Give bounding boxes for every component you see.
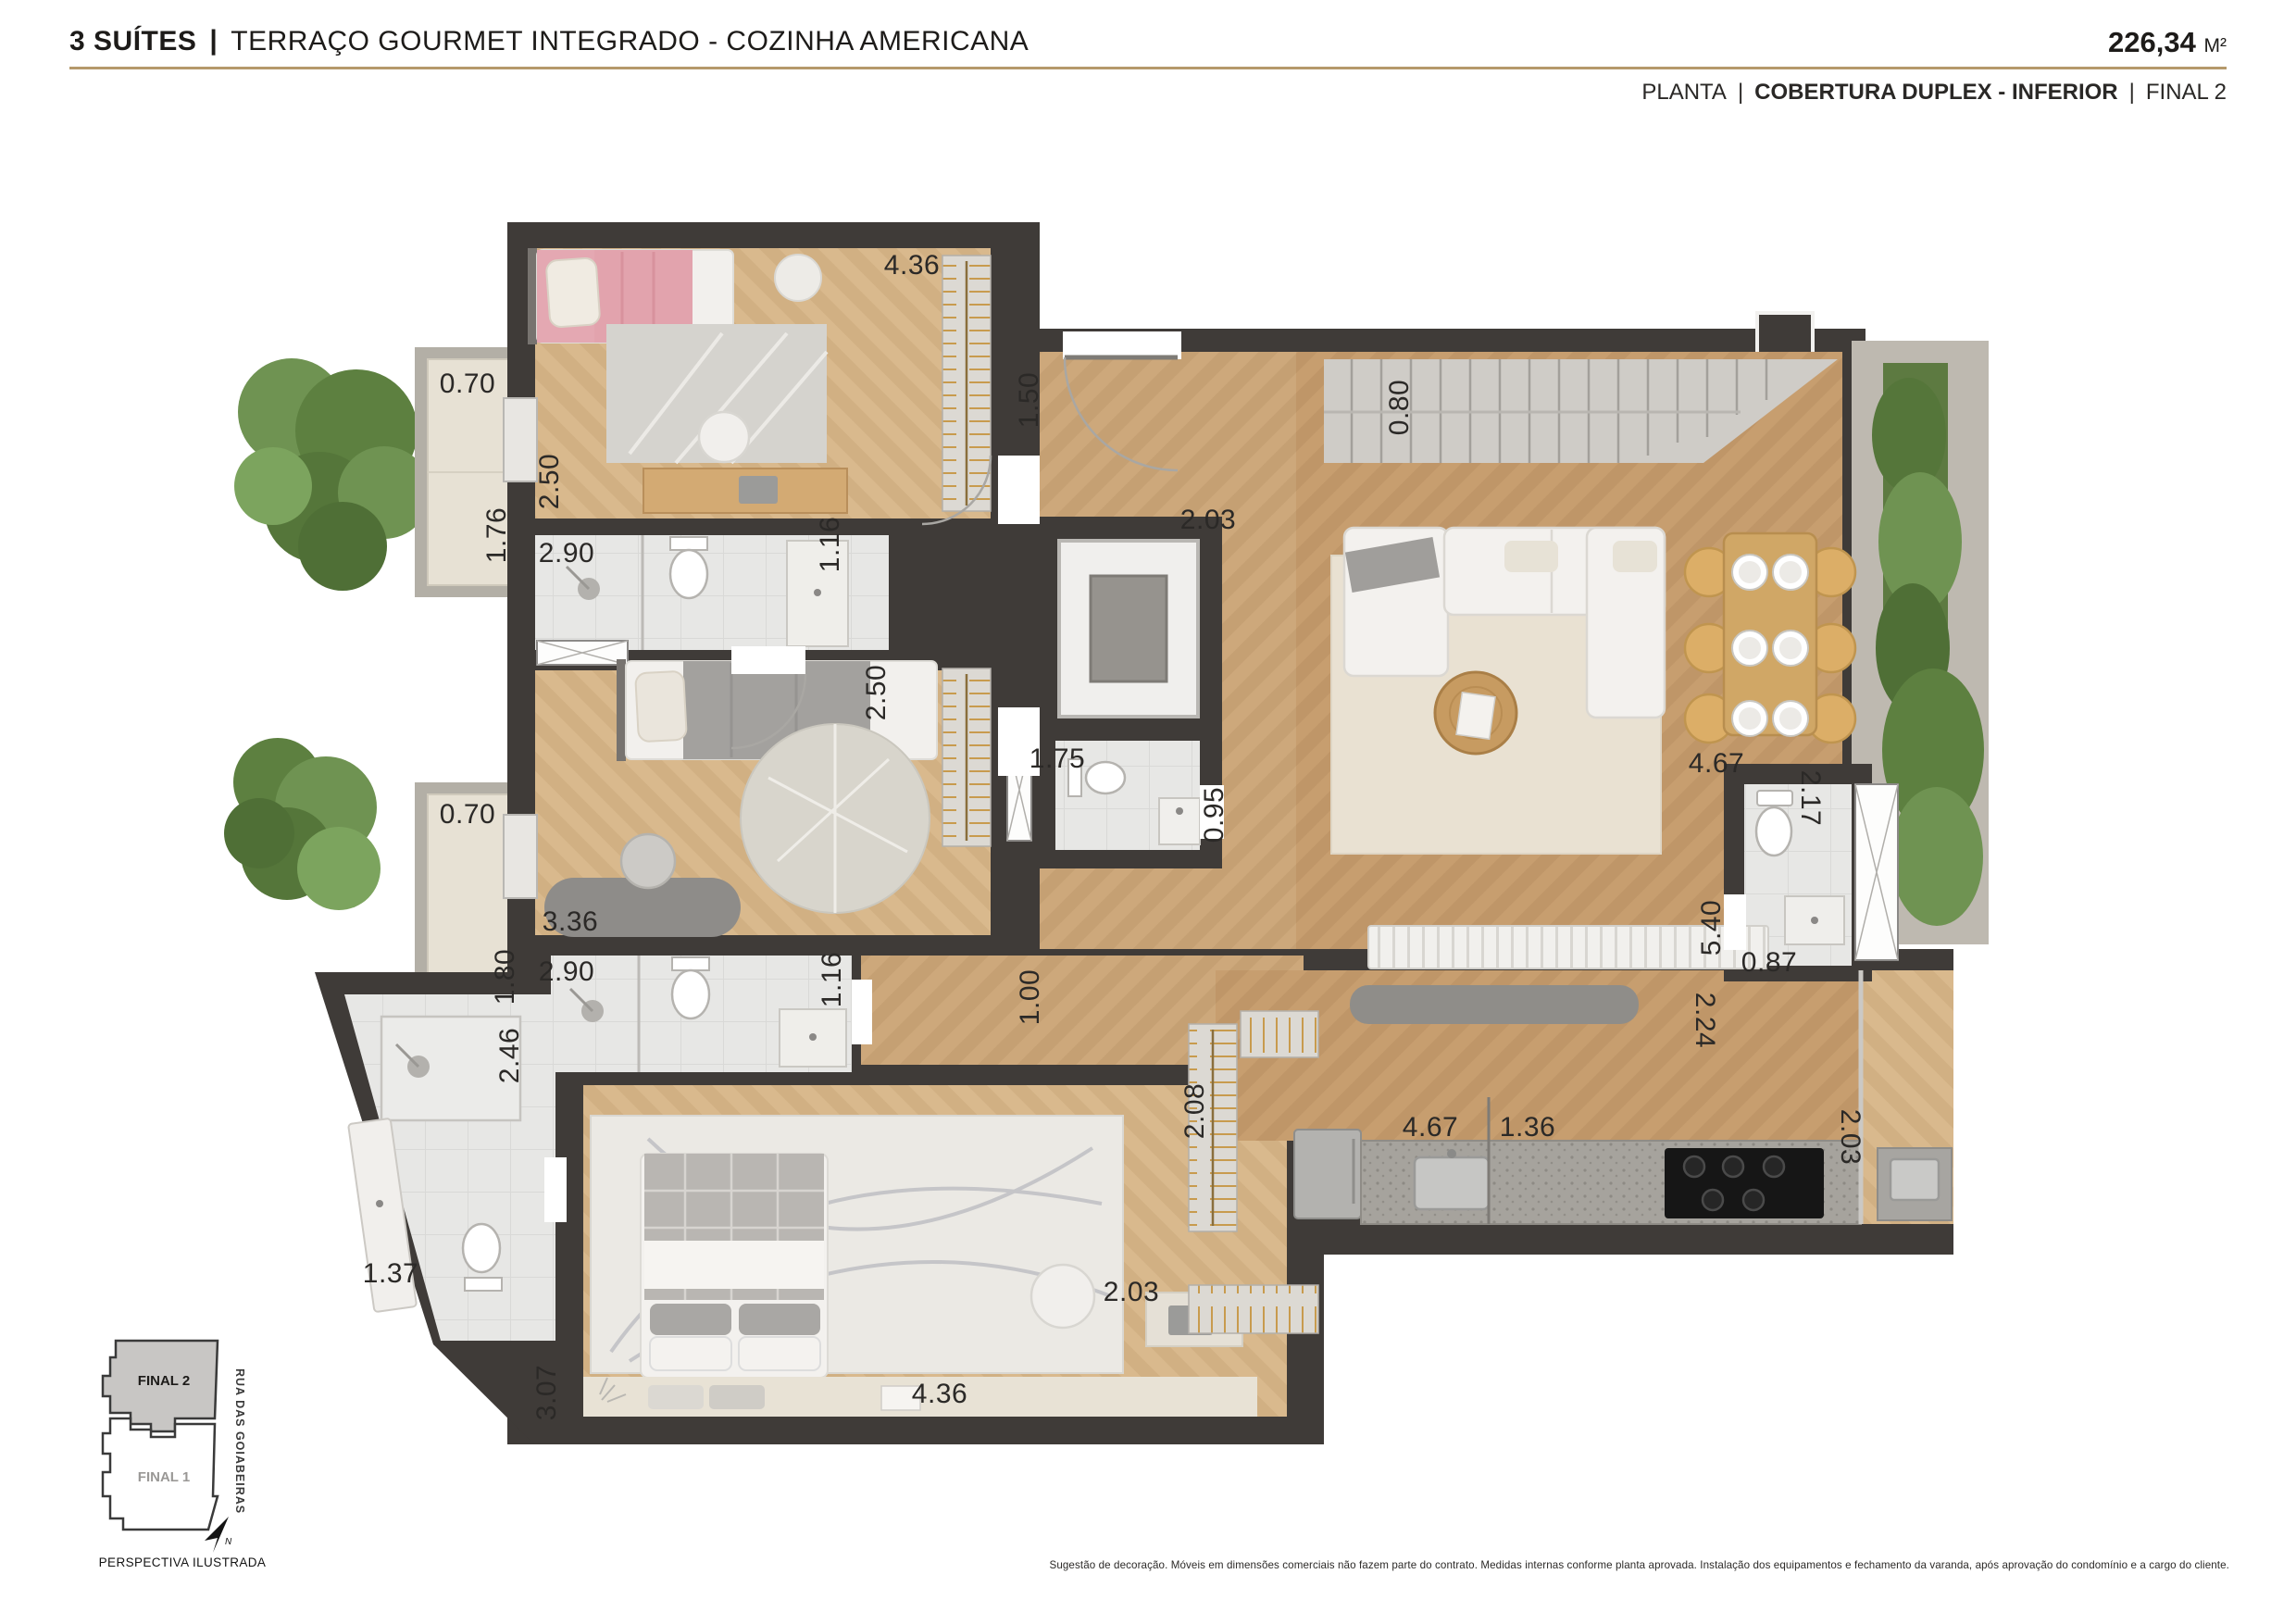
- key-plan: FINAL 2 FINAL 1 RUA DAS GOIABEIRAS N: [103, 1341, 246, 1553]
- tree-top-left: [234, 358, 430, 591]
- pillow: [739, 1337, 820, 1370]
- floor-plan: FINAL 2 FINAL 1 RUA DAS GOIABEIRAS N: [0, 0, 2296, 1624]
- toilet-tank: [1068, 759, 1081, 796]
- sink-icon: [1890, 1159, 1939, 1200]
- pillow: [635, 671, 687, 743]
- street-label: RUA DAS GOIABEIRAS: [233, 1368, 246, 1514]
- closet: [1189, 1285, 1318, 1333]
- sink-icon: [1415, 1157, 1489, 1209]
- pillow: [650, 1304, 731, 1335]
- bed-headboard: [617, 659, 626, 761]
- book: [881, 1386, 920, 1410]
- toilet-icon: [1086, 762, 1125, 793]
- dining: [1685, 533, 1855, 743]
- fridge: [1294, 1130, 1361, 1218]
- key-plan-label-final2: FINAL 2: [138, 1373, 190, 1389]
- toilet-icon: [1756, 807, 1791, 856]
- living-room: [1331, 528, 1665, 854]
- pillow: [546, 257, 601, 328]
- chair: [621, 834, 675, 888]
- closet: [1241, 1011, 1318, 1057]
- bed-headboard: [528, 248, 537, 344]
- pouf: [775, 255, 821, 301]
- pillow: [1504, 541, 1558, 572]
- tree-mid-left: [224, 738, 381, 910]
- legal-disclaimer: Sugestão de decoração. Móveis em dimensõ…: [933, 1559, 2229, 1571]
- sink-icon: [1159, 798, 1200, 844]
- toilet-icon: [463, 1224, 500, 1272]
- laptop: [739, 476, 778, 504]
- book: [1456, 693, 1495, 740]
- toilet-icon: [670, 550, 707, 598]
- pillow: [1613, 541, 1657, 572]
- shower-box: [381, 1017, 520, 1120]
- key-plan-label-final1: FINAL 1: [138, 1469, 190, 1485]
- tv-console: [1350, 985, 1639, 1024]
- pillow: [650, 1337, 731, 1370]
- perspective-caption: PERSPECTIVA ILUSTRADA: [85, 1555, 280, 1569]
- toilet-icon: [672, 970, 709, 1018]
- pillow: [739, 1304, 820, 1335]
- island-bar: [1368, 926, 1768, 968]
- north-label: N: [225, 1537, 232, 1547]
- side-table: [1031, 1265, 1094, 1328]
- chair: [699, 412, 749, 462]
- lavabo: [1055, 741, 1200, 850]
